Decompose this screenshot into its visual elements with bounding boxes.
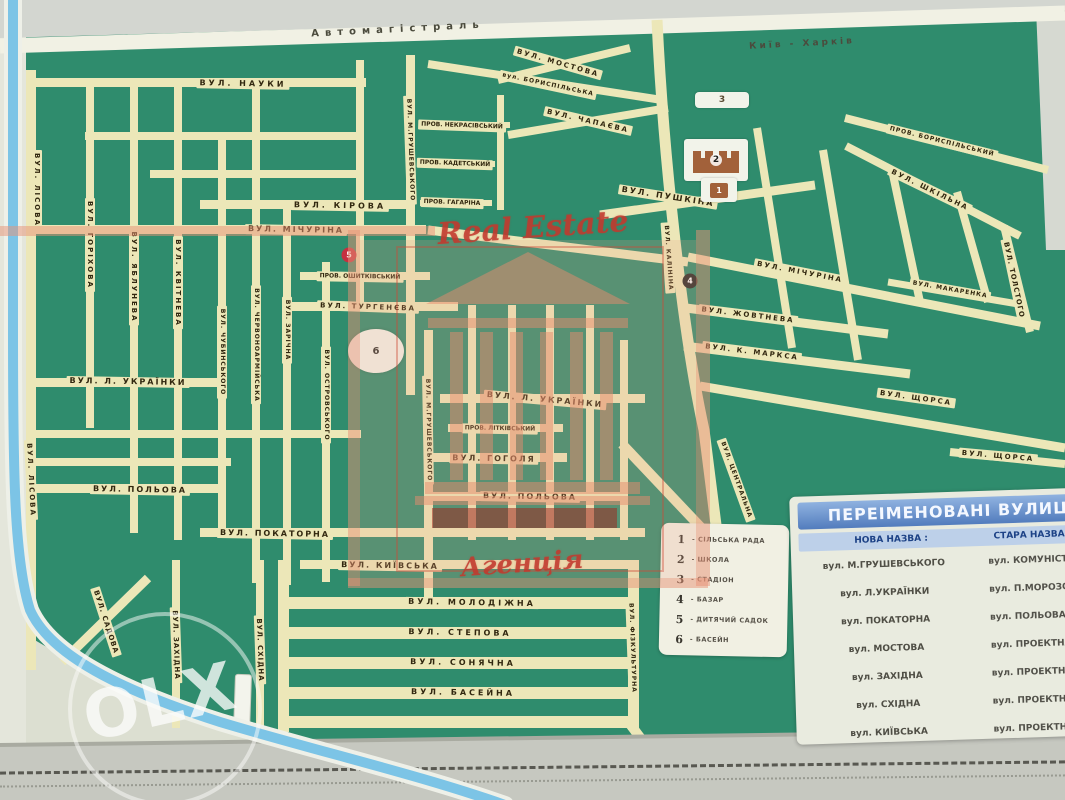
old-street-name: вул. ПРОЕКТНА (980, 666, 1065, 679)
new-street-name: вул. М.ГРУШЕВСЬКОГО (791, 557, 976, 573)
renamed-streets-table: ПЕРЕІМЕНОВАНІ ВУЛИЦІ НОВА НАЗВА : СТАРА … (789, 487, 1065, 745)
legend-item: 4БАЗАР (660, 589, 788, 612)
legend-item: 3СТАДІОН (660, 569, 788, 592)
legend-item: 2ШКОЛА (660, 549, 788, 572)
old-street-name: вул. П.МОРОЗОВА (977, 581, 1065, 594)
legend-item-number: 6 (659, 632, 690, 646)
legend-item-number: 4 (660, 592, 691, 606)
column-header-old: СТАРА НАЗВА (983, 529, 1064, 542)
old-street-name: вул. ПРОЕКТНА (979, 638, 1065, 651)
old-street-name: вул. ПРОЕКТНА (981, 694, 1065, 707)
table-rows: вул. М.ГРУШЕВСЬКОГОвул. КОМУНІСТИЧНАвул.… (791, 545, 1065, 745)
legend-item-label: ДИТЯЧИЙ САДОК (690, 615, 768, 625)
new-street-name: вул. КИЇВСЬКА (797, 725, 982, 741)
legend-item: 1СІЛЬСЬКА РАДА (661, 529, 789, 552)
new-street-name: вул. МОСТОВА (794, 641, 979, 657)
table-title: ПЕРЕІМЕНОВАНІ ВУЛИЦІ (797, 493, 1065, 529)
legend-item-label: БАЗАР (691, 595, 724, 604)
column-header-new: НОВА НАЗВА : (798, 532, 983, 548)
legend-item: 6БАСЕЙН (659, 629, 787, 652)
new-street-name: вул. Л.УКРАЇНКИ (792, 585, 977, 601)
old-street-name: вул. ПОЛЬОВА (978, 610, 1065, 623)
old-street-name: вул. ПРОЕКТНА (981, 722, 1065, 735)
legend-item-number: 3 (660, 572, 691, 586)
old-street-name: вул. КОМУНІСТИЧНА (976, 553, 1065, 567)
legend-item-label: СТАДІОН (691, 575, 734, 584)
legend-item-number: 1 (661, 532, 692, 546)
legend-item: 5ДИТЯЧИЙ САДОК (659, 609, 787, 632)
legend-item-number: 2 (661, 552, 692, 566)
legend-item-number: 5 (659, 612, 690, 626)
new-street-name: вул. СХІДНА (796, 697, 981, 713)
legend-list: 1СІЛЬСЬКА РАДА2ШКОЛА3СТАДІОН4БАЗАР5ДИТЯЧ… (659, 529, 789, 652)
legend-panel: 1СІЛЬСЬКА РАДА2ШКОЛА3СТАДІОН4БАЗАР5ДИТЯЧ… (659, 523, 790, 658)
new-street-name: вул. ЗАХІДНА (795, 669, 980, 685)
legend-item-label: БАСЕЙН (690, 635, 729, 644)
map-sign-photo: АвтомагістральКиїв - ХарківВУЛ. МОСТОВАв… (0, 0, 1065, 800)
legend-item-label: ШКОЛА (692, 555, 730, 564)
new-street-name: вул. ПОКАТОРНА (793, 613, 978, 629)
legend-item-label: СІЛЬСЬКА РАДА (692, 535, 765, 545)
